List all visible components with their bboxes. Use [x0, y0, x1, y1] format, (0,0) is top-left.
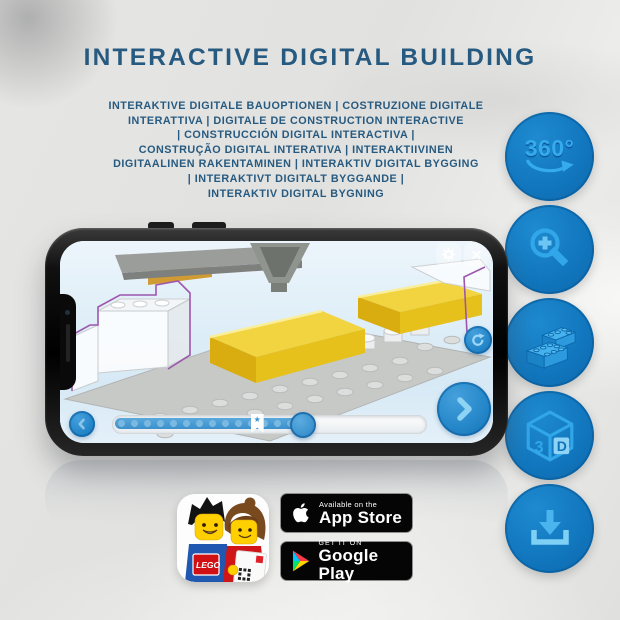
cube-3-label: 3: [534, 437, 543, 456]
page-title: INTERACTIVE DIGITAL BUILDING: [0, 44, 620, 72]
front-camera: [65, 310, 70, 315]
feature-download-icon: [505, 484, 594, 573]
settings-button[interactable]: [436, 243, 461, 266]
phone-reflection: [45, 460, 508, 534]
subtitle-line: INTERATTIVA | DIGITALE DE CONSTRUCTION I…: [62, 114, 530, 129]
apple-icon: [291, 501, 311, 525]
phone-mockup: ✕ ★: [45, 228, 508, 456]
slider-thumb[interactable]: [290, 412, 316, 438]
feature-bricks-icon: [505, 298, 594, 387]
cube-d-label: D: [556, 438, 566, 454]
lego-3d-scene: [60, 241, 493, 443]
subtitle-line: INTERAKTIV DIGITAL BYGNING: [62, 187, 530, 202]
subtitle-line: DIGITAALINEN RAKENTAMINEN | INTERAKTIV D…: [62, 157, 530, 172]
google-play-badge[interactable]: GET IT ON Google Play: [280, 541, 413, 581]
chevron-right-icon: [452, 397, 476, 421]
star-icon: ★: [254, 414, 261, 425]
lego-app-icon[interactable]: LEGO: [177, 494, 269, 582]
app-store-name: App Store: [319, 509, 402, 527]
subtitle-line: CONSTRUÇÃO DIGITAL INTERATIVA | INTERAKT…: [62, 143, 530, 158]
chevron-left-icon: [76, 418, 88, 430]
lego-app-artwork: LEGO: [177, 494, 269, 582]
feature-zoom-icon: [505, 205, 594, 294]
lego-logo-text: LEGO: [196, 560, 220, 570]
gear-icon: [441, 247, 456, 262]
feature-3d-view-icon: 3 D: [505, 391, 594, 480]
subtitle-line: | CONSTRUCCIÓN DIGITAL INTERACTIVA |: [62, 128, 530, 143]
subtitle-line: INTERAKTIVE DIGITALE BAUOPTIONEN | COSTR…: [62, 99, 530, 114]
lego-bricks-icon: [521, 314, 579, 372]
download-arrow-icon: [524, 503, 576, 555]
subtitle-line: | INTERAKTIVT DIGITALT BYGGANDE |: [62, 172, 530, 187]
previous-step-button[interactable]: [69, 411, 95, 437]
magnifier-plus-icon: [524, 224, 576, 276]
360-degree-label: 360°: [525, 138, 575, 158]
earpiece-speaker: [66, 324, 70, 362]
rotation-arrow-icon: [524, 158, 576, 176]
google-play-icon: [291, 549, 311, 573]
bookmark-marker[interactable]: ★: [251, 414, 264, 433]
google-play-name: Google Play: [319, 547, 412, 583]
phone-notch: [60, 294, 76, 390]
app-store-badge[interactable]: Available on the App Store: [280, 493, 413, 533]
phone-screen: ✕ ★: [60, 241, 493, 443]
build-progress-slider[interactable]: ★: [112, 415, 427, 434]
3d-cube-icon: 3 D: [523, 409, 577, 463]
slider-fill: [115, 418, 303, 429]
close-icon: ✕: [471, 248, 483, 262]
feature-360-rotation-icon: 360°: [505, 112, 594, 201]
reset-view-button[interactable]: [464, 326, 492, 354]
multilingual-subtitle: INTERAKTIVE DIGITALE BAUOPTIONEN | COSTR…: [62, 99, 530, 201]
close-button[interactable]: ✕: [464, 243, 489, 266]
refresh-icon: [470, 332, 486, 348]
next-step-button[interactable]: [437, 382, 491, 436]
